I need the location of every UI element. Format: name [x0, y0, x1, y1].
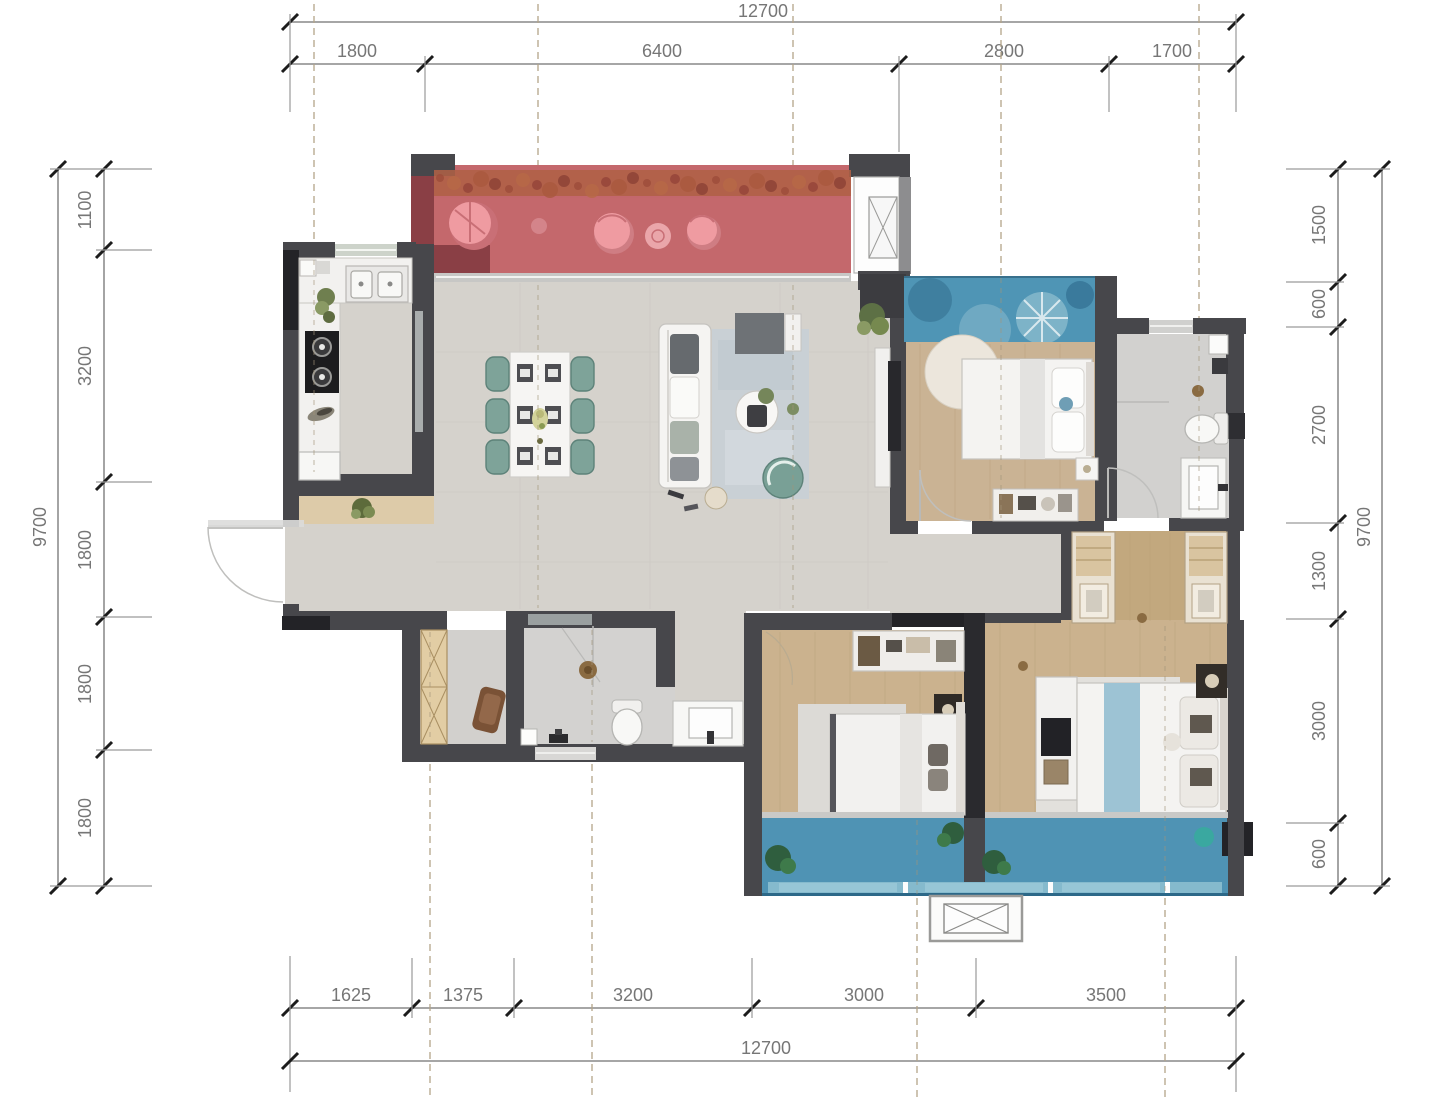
svg-text:1300: 1300: [1309, 551, 1329, 591]
svg-text:9700: 9700: [1354, 507, 1374, 547]
svg-text:1800: 1800: [75, 798, 95, 838]
svg-text:1100: 1100: [75, 191, 95, 230]
svg-text:600: 600: [1309, 839, 1329, 869]
svg-text:12700: 12700: [738, 1, 788, 21]
svg-text:1700: 1700: [1152, 41, 1192, 61]
svg-text:3500: 3500: [1086, 985, 1126, 1005]
svg-text:3200: 3200: [613, 985, 653, 1005]
svg-text:6400: 6400: [642, 41, 682, 61]
svg-text:2800: 2800: [984, 41, 1024, 61]
svg-text:3000: 3000: [1309, 701, 1329, 741]
svg-text:1800: 1800: [75, 530, 95, 570]
svg-text:3000: 3000: [844, 985, 884, 1005]
svg-text:1800: 1800: [337, 41, 377, 61]
svg-text:1500: 1500: [1309, 205, 1329, 245]
svg-text:1375: 1375: [443, 985, 483, 1005]
svg-text:1625: 1625: [331, 985, 371, 1005]
svg-text:2700: 2700: [1309, 405, 1329, 445]
svg-text:12700: 12700: [741, 1038, 791, 1058]
svg-text:600: 600: [1309, 289, 1329, 319]
svg-text:9700: 9700: [30, 507, 50, 547]
svg-text:3200: 3200: [75, 346, 95, 386]
svg-text:1800: 1800: [75, 664, 95, 704]
